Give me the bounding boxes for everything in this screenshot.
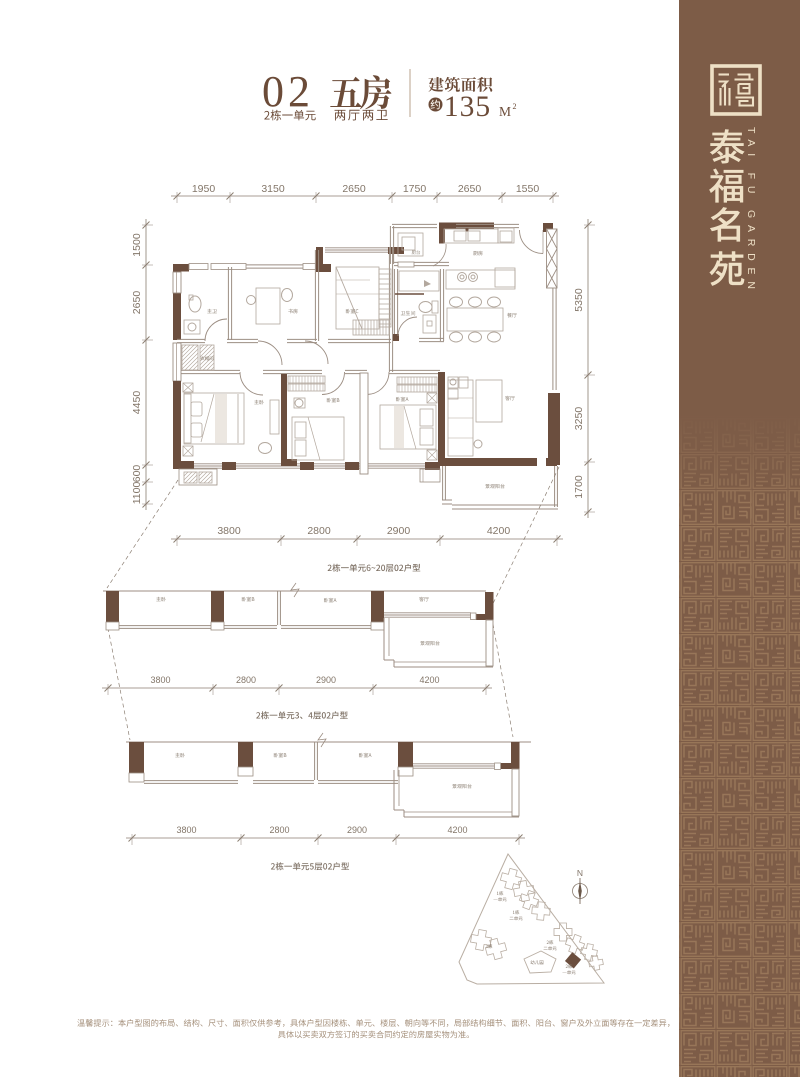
svg-text:2: 2: [513, 102, 517, 111]
svg-text:3800: 3800: [150, 675, 170, 685]
svg-text:2800: 2800: [307, 525, 331, 537]
svg-text:2650: 2650: [131, 291, 143, 315]
svg-text:2650: 2650: [342, 183, 366, 195]
svg-text:1950: 1950: [192, 183, 216, 195]
svg-text:2900: 2900: [316, 675, 336, 685]
svg-text:1700: 1700: [573, 475, 585, 499]
svg-text:1500: 1500: [131, 233, 143, 257]
svg-text:4200: 4200: [487, 525, 511, 537]
svg-text:3800: 3800: [176, 825, 196, 835]
svg-text:2800: 2800: [236, 675, 256, 685]
svg-text:2900: 2900: [347, 825, 367, 835]
svg-text:3150: 3150: [261, 183, 285, 195]
svg-text:02: 02: [262, 67, 314, 116]
svg-text:3800: 3800: [217, 525, 241, 537]
svg-text:1750: 1750: [403, 183, 427, 195]
svg-text:2900: 2900: [387, 525, 411, 537]
svg-text:4200: 4200: [447, 825, 467, 835]
svg-text:4200: 4200: [419, 675, 439, 685]
svg-text:5350: 5350: [573, 288, 585, 312]
svg-text:4450: 4450: [131, 391, 143, 415]
svg-text:3250: 3250: [573, 407, 585, 431]
svg-text:N: N: [577, 868, 583, 878]
svg-text:TAI FU GARDEN: TAI FU GARDEN: [745, 127, 757, 296]
svg-text:1550: 1550: [516, 183, 540, 195]
svg-text:2650: 2650: [458, 183, 482, 195]
svg-text:M: M: [499, 104, 511, 119]
svg-text:1100: 1100: [131, 482, 143, 505]
svg-text:600: 600: [131, 465, 143, 483]
svg-text:135: 135: [444, 91, 491, 123]
svg-text:2800: 2800: [269, 825, 289, 835]
